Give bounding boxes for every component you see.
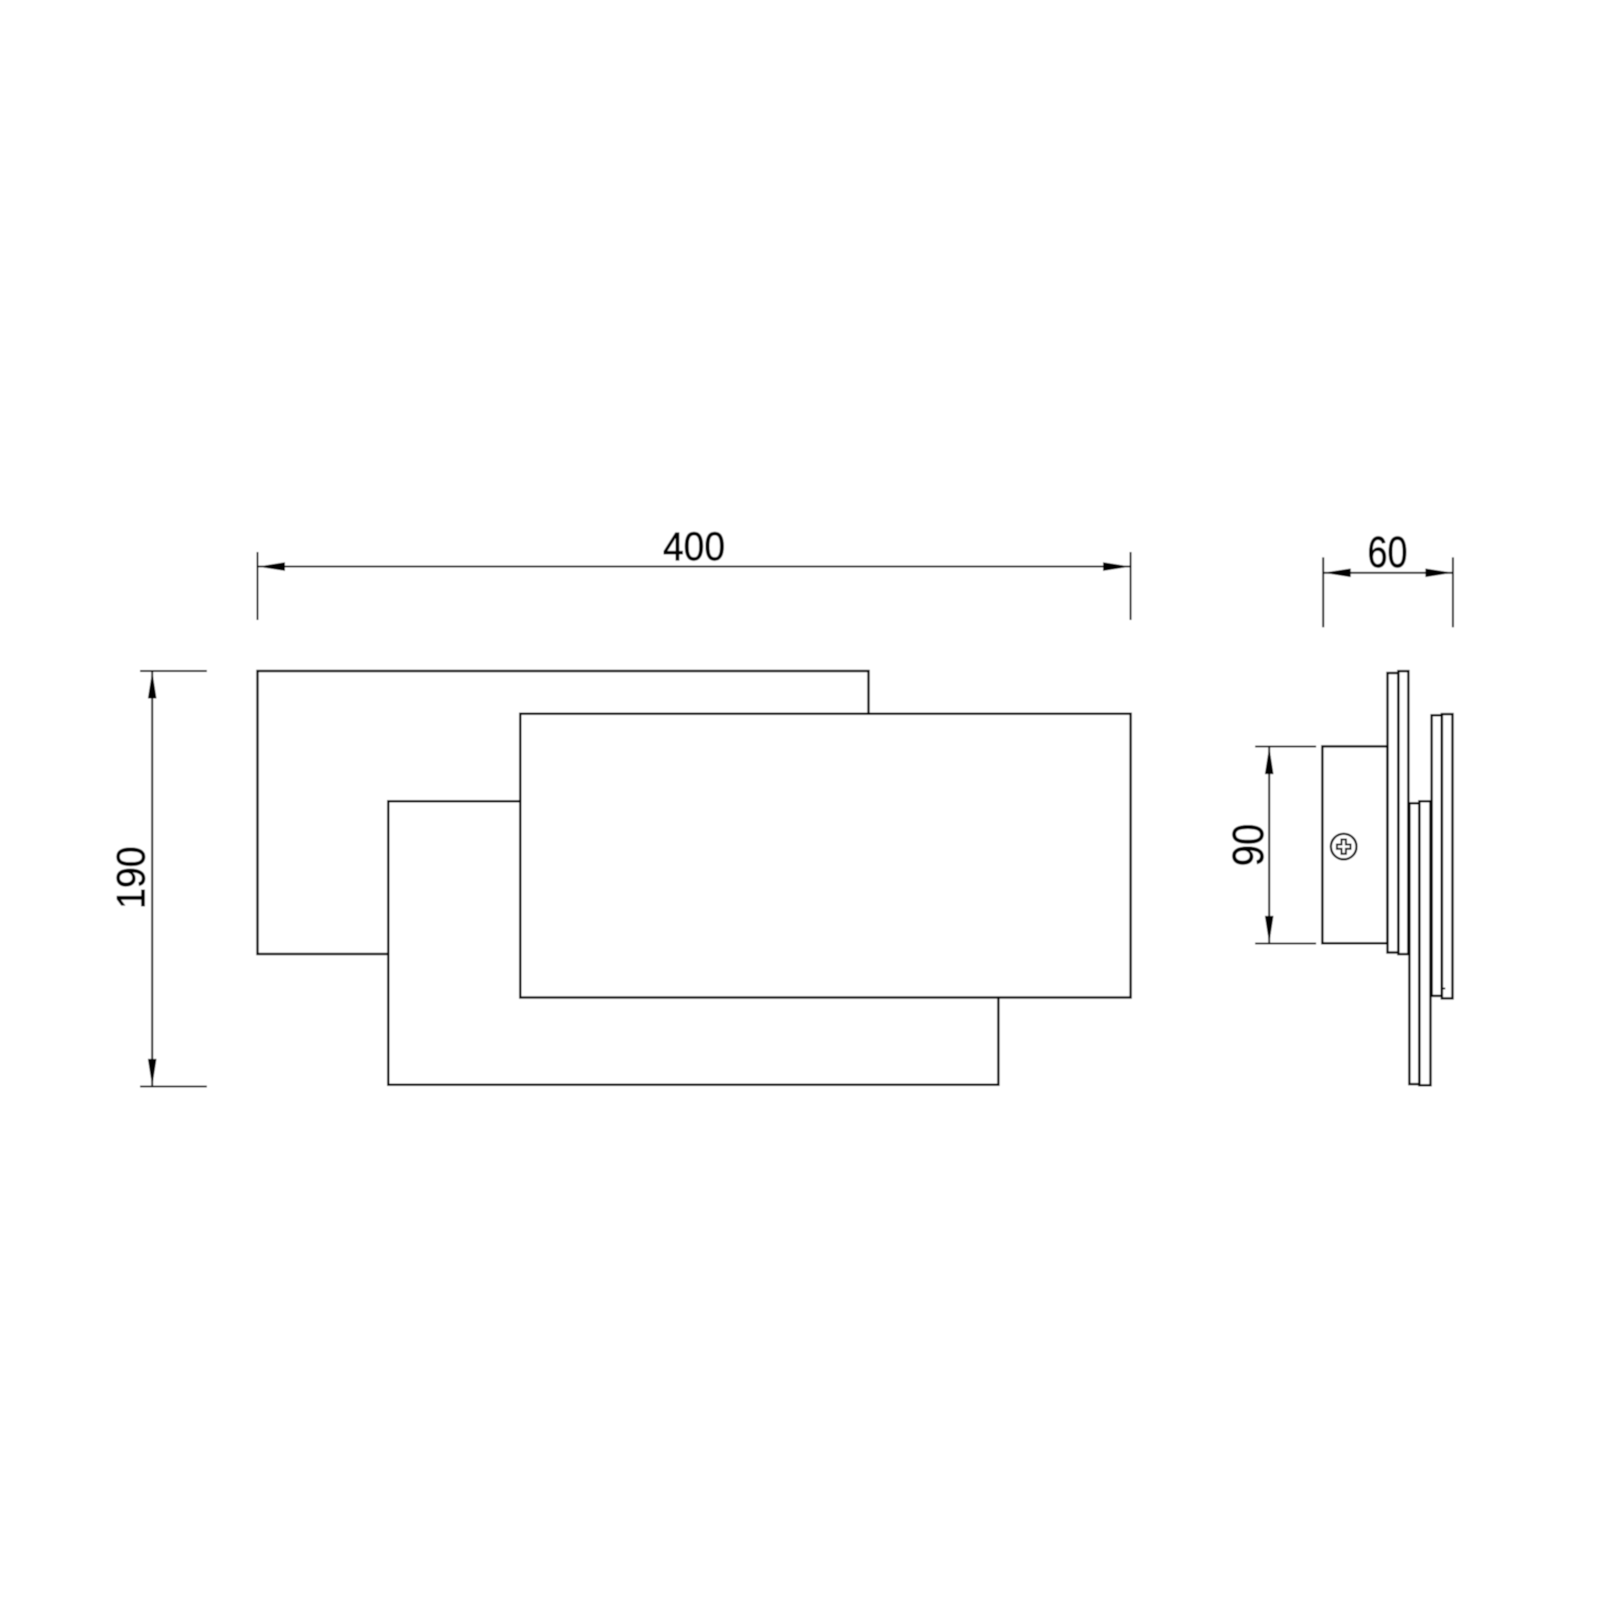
svg-text:190: 190 [109,846,153,909]
svg-text:400: 400 [663,525,725,569]
svg-text:90: 90 [1224,824,1273,867]
svg-text:60: 60 [1368,528,1408,577]
